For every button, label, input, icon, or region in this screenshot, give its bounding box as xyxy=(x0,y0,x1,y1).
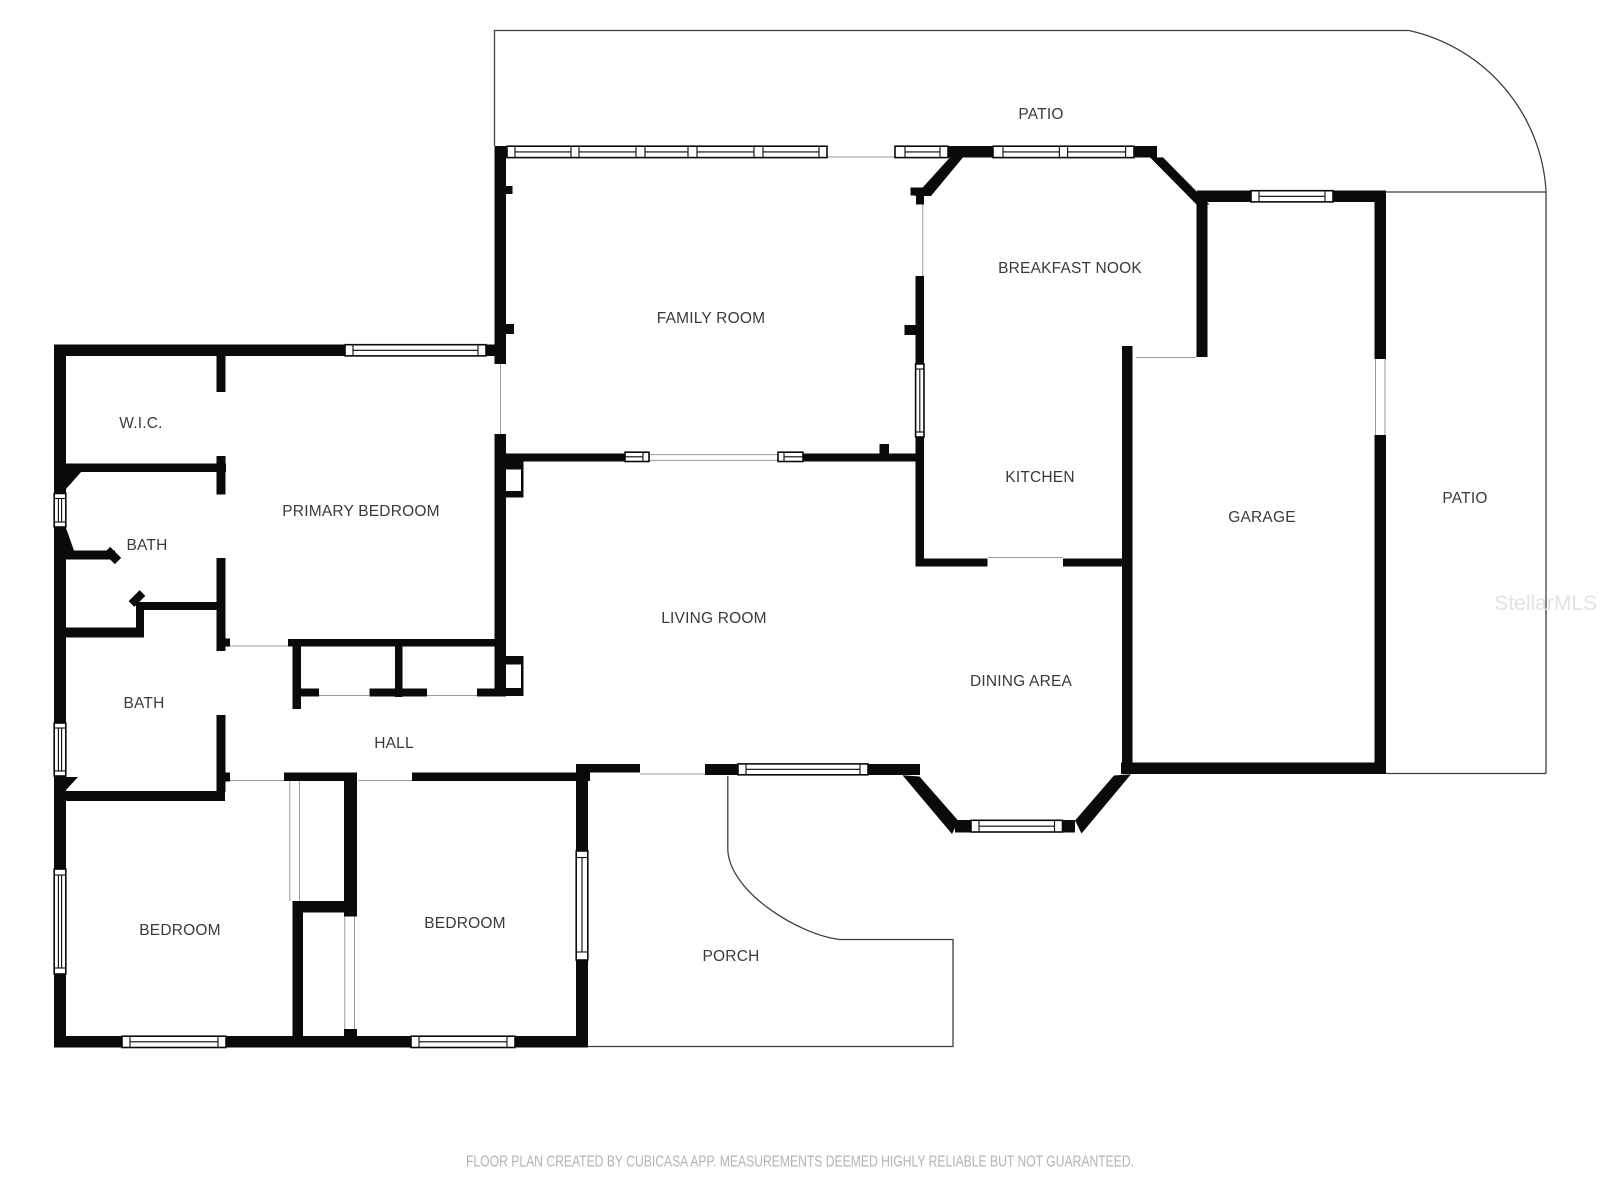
svg-text:KITCHEN: KITCHEN xyxy=(1005,469,1074,486)
svg-text:GARAGE: GARAGE xyxy=(1228,509,1296,526)
svg-text:BATH: BATH xyxy=(124,695,165,712)
svg-text:HALL: HALL xyxy=(374,735,414,752)
svg-text:BEDROOM: BEDROOM xyxy=(424,915,506,932)
svg-text:W.I.C.: W.I.C. xyxy=(119,415,162,432)
svg-text:BATH: BATH xyxy=(127,537,168,554)
svg-text:StellarMLS: StellarMLS xyxy=(1494,592,1597,615)
svg-text:PATIO: PATIO xyxy=(1018,106,1063,123)
svg-text:FAMILY ROOM: FAMILY ROOM xyxy=(657,310,765,327)
svg-text:PATIO: PATIO xyxy=(1442,490,1487,507)
svg-text:PORCH: PORCH xyxy=(703,948,760,965)
svg-text:FLOOR PLAN CREATED BY CUBICASA: FLOOR PLAN CREATED BY CUBICASA APP. MEAS… xyxy=(466,1154,1134,1171)
svg-text:BEDROOM: BEDROOM xyxy=(139,922,221,939)
svg-text:PRIMARY BEDROOM: PRIMARY BEDROOM xyxy=(282,503,439,520)
svg-text:LIVING ROOM: LIVING ROOM xyxy=(661,610,767,627)
svg-text:DINING AREA: DINING AREA xyxy=(970,673,1073,690)
svg-text:BREAKFAST NOOK: BREAKFAST NOOK xyxy=(998,260,1142,277)
